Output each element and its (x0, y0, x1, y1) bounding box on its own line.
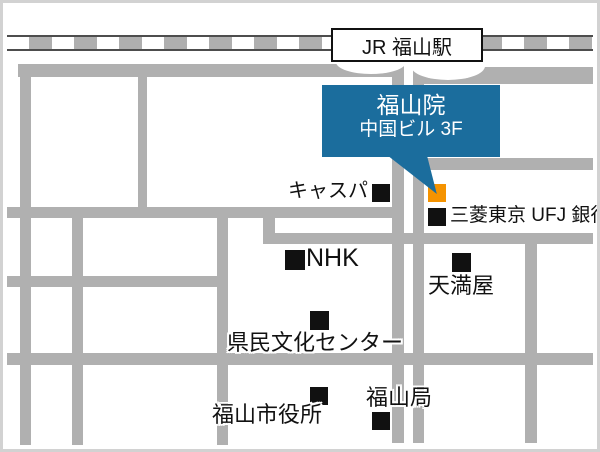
road-horizontal-west-short (7, 276, 228, 287)
landmark-square-caspa (372, 184, 390, 202)
landmark-square-tenmaya (452, 253, 471, 272)
callout-title: 福山院 (322, 92, 500, 118)
road-vertical-west2 (138, 77, 147, 208)
road-east-mid (424, 158, 593, 170)
landmark-square-nhk (285, 250, 305, 270)
station-label-box: JR 福山駅 (331, 28, 483, 62)
road-vertical-sw1 (72, 218, 83, 445)
road-vertical-west (20, 77, 31, 445)
location-callout: 福山院 中国ビル 3F (322, 85, 500, 157)
landmark-label-tenmaya: 天満屋 (428, 274, 494, 297)
station-label: JR 福山駅 (362, 31, 452, 60)
landmark-square-mitsubishi-bank (428, 208, 446, 226)
landmark-label-caspa: キャスパ (238, 181, 368, 202)
landmark-label-fukuyama-city-hall: 福山市役所 (212, 403, 322, 426)
road-horizontal-mid-lower (263, 233, 593, 244)
road-vertical-east (525, 236, 537, 443)
landmark-label-kenmin-bunka-center: 県民文化センター (227, 331, 403, 354)
map-canvas: JR 福山駅 福山院 中国ビル 3F キャスパ 三菱東京 UFJ 銀行 NHK … (0, 0, 600, 452)
road-jog-connector (263, 218, 275, 234)
callout-subtitle: 中国ビル 3F (322, 118, 500, 142)
landmark-square-fukuyama-kyoku (372, 412, 390, 430)
landmark-label-nhk: NHK (306, 245, 359, 271)
landmark-label-fukuyama-kyoku: 福山局 (366, 386, 432, 409)
road-horizontal-mid-upper (7, 207, 404, 218)
railway-line (7, 35, 593, 51)
landmark-square-kenmin-bunka-center (310, 311, 329, 330)
landmark-label-mitsubishi-bank: 三菱東京 UFJ 銀行 (450, 206, 600, 226)
